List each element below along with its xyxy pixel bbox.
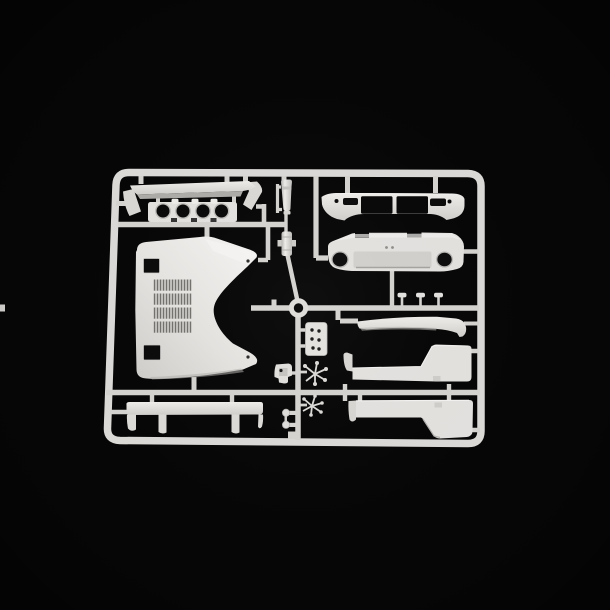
bumper-detail-dot xyxy=(391,246,394,249)
headlamp-panel-notch xyxy=(171,218,177,222)
cylinder-side-nub xyxy=(292,240,296,247)
hinge-plate-hole xyxy=(311,346,314,349)
runner-tab-nub xyxy=(272,300,277,307)
bumper-detail-dot xyxy=(385,246,388,249)
micro-part-tip xyxy=(319,410,323,414)
bumper-plate-recess xyxy=(354,252,432,269)
rivet-head xyxy=(282,421,289,428)
rivet-head xyxy=(282,409,289,416)
micro-part-tip xyxy=(315,361,319,365)
rivet-link xyxy=(285,416,288,422)
hood-louvre-row xyxy=(154,280,192,291)
hinge-plate-hole xyxy=(310,328,313,331)
hood-louvre-row xyxy=(154,294,192,305)
micro-part-tip xyxy=(320,401,324,405)
hood-square-opening-bottom xyxy=(144,345,161,360)
micro-part-tip xyxy=(324,367,328,371)
hood-locating-hole-bottom xyxy=(246,355,249,358)
t-clip-stem xyxy=(401,297,404,307)
skirt-lower-end-cap xyxy=(348,401,356,422)
rivet-shaft xyxy=(289,423,296,427)
rivet-shaft xyxy=(289,411,296,415)
micro-part-tip xyxy=(323,378,327,382)
headlamp-opening xyxy=(214,204,228,218)
skirt-lower-tab xyxy=(435,403,443,408)
micro-part-tip xyxy=(302,397,306,401)
valance-leg xyxy=(159,415,167,434)
bracket-hole xyxy=(279,369,282,372)
hood-square-opening-top xyxy=(144,259,160,274)
hinge-plate-part xyxy=(306,323,328,356)
headlamp-panel-part xyxy=(148,199,237,222)
t-clip-stem xyxy=(437,297,440,307)
headlamp-panel-tab xyxy=(192,199,199,204)
rear-bumper-part xyxy=(328,233,464,272)
skirt-upper-tab xyxy=(433,376,441,381)
valance-leg xyxy=(232,415,240,434)
cylinder-body xyxy=(282,232,293,257)
hinge-plate-hole xyxy=(310,337,313,340)
tail-panel-hole-right xyxy=(448,200,452,204)
hood-locating-hole-top xyxy=(246,259,249,262)
headlamp-panel-notch xyxy=(211,218,217,222)
micro-part-tip xyxy=(313,394,317,398)
intake-cone-collar xyxy=(282,187,292,190)
hinge-plate-hole xyxy=(317,329,320,332)
hinge-plate-body xyxy=(306,323,328,356)
bumper-oval-recess-right xyxy=(437,252,453,267)
tail-lamp-opening-right xyxy=(397,196,429,214)
micro-part-tip xyxy=(303,364,307,368)
intake-cone-base xyxy=(284,211,291,215)
hinge-plate-hole xyxy=(317,347,320,350)
tail-panel-end-slot-left xyxy=(343,198,358,205)
headlamp-opening xyxy=(176,204,190,218)
skirt-lower-highlight xyxy=(356,400,469,401)
micro-part-tip xyxy=(309,413,313,417)
runner-gate-nub xyxy=(0,305,5,312)
hinge-plate-hole xyxy=(317,338,320,341)
valance-band xyxy=(126,402,263,415)
headlamp-opening xyxy=(196,204,210,218)
runner-bottom-gate xyxy=(288,432,298,440)
photo-canvas xyxy=(0,0,610,610)
t-clip-head xyxy=(398,293,407,298)
hood-louvre-row xyxy=(154,308,192,319)
t-clip-head xyxy=(416,293,425,298)
tail-panel-end-slot-right xyxy=(430,199,446,207)
headlamp-panel-notch xyxy=(191,218,197,222)
cylinder-side-nub xyxy=(278,240,282,247)
headlamp-opening xyxy=(156,204,170,218)
headlamp-panel-tab xyxy=(172,199,179,204)
sprue-photo xyxy=(0,0,610,610)
bumper-oval-recess-left xyxy=(332,252,348,267)
hood-louvre-row xyxy=(154,322,192,333)
tail-panel-top-highlight xyxy=(342,194,452,195)
micro-part-tip xyxy=(313,382,317,386)
tail-panel-hole-left xyxy=(335,199,339,203)
tail-lamp-opening-left xyxy=(361,196,393,214)
valance-leg xyxy=(127,415,136,431)
headlamp-panel-tab xyxy=(211,199,218,204)
t-clip-head xyxy=(434,293,443,298)
t-clip-stem xyxy=(419,297,422,307)
